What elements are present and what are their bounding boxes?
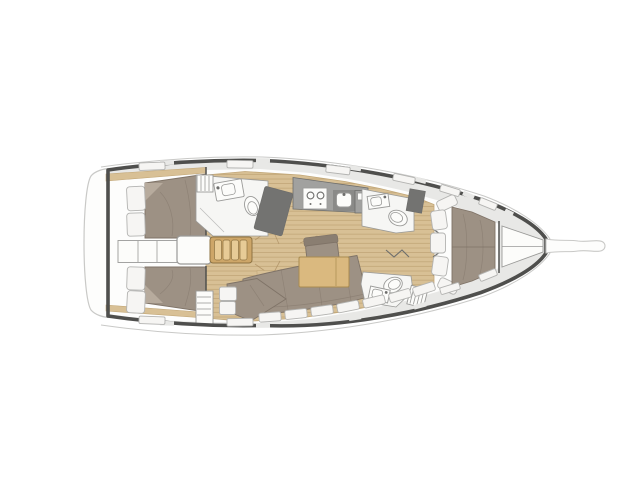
yacht-floor-plan-image	[0, 0, 640, 479]
armrest	[220, 287, 237, 301]
companionway-stairs	[210, 237, 252, 263]
bow-structures	[502, 226, 605, 267]
pillow	[127, 213, 146, 237]
slatted-cabinet	[196, 291, 213, 324]
dining-table	[299, 257, 349, 287]
boat-floor-plan	[0, 0, 640, 479]
pillow	[126, 291, 145, 314]
armrest	[220, 302, 236, 315]
berth-extension-row	[118, 241, 177, 263]
bowsprit	[546, 239, 605, 253]
galley-sink	[333, 190, 355, 211]
hanging-locker	[406, 189, 425, 213]
slatted-locker	[197, 175, 213, 192]
two-burner-stove	[303, 188, 327, 209]
pillow	[127, 267, 146, 291]
pillow	[126, 186, 145, 211]
swim-platform	[84, 169, 110, 318]
engine-compartment	[177, 236, 211, 264]
companionway	[118, 236, 252, 264]
washbasin	[367, 194, 390, 210]
